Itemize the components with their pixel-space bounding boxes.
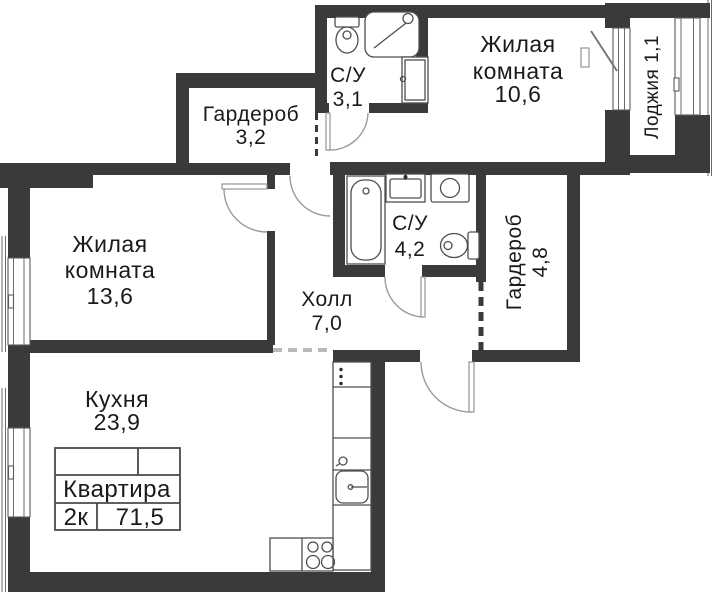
door-living-left (222, 184, 267, 232)
label-wardrobe-right-area: 4,8 (529, 247, 552, 278)
label-bathroom-mid-area: 4,2 (395, 238, 426, 261)
label-wardrobe-top-name: Гардероб (203, 103, 299, 126)
label-living-left-area: 13,6 (87, 283, 134, 309)
label-hall-name: Холл (301, 288, 353, 311)
stamp-total-area: 71,5 (116, 504, 165, 531)
balcony-door-handle (581, 48, 589, 67)
stove-icon (270, 538, 335, 571)
toilet-icon (441, 232, 480, 259)
door-bathroom-top (326, 113, 368, 150)
floor-plan: Жилая комната 10,6 С/У 3,1 Гардероб 3,2 … (0, 0, 713, 600)
toilet-icon (335, 17, 359, 53)
sink-icon (401, 57, 429, 103)
shower-icon (365, 12, 419, 57)
washing-machine-icon (431, 174, 469, 202)
sink-icon (386, 174, 425, 202)
window-kitchen (8, 428, 30, 517)
entry-door (421, 362, 474, 412)
label-hall-area: 7,0 (312, 312, 343, 335)
loggia-door-window (581, 28, 630, 110)
loggia-glazing (674, 18, 700, 115)
floor-plan-drawing: Жилая комната 10,6 С/У 3,1 Гардероб 3,2 … (0, 0, 713, 600)
area-stamp: Квартира 2к 71,5 (55, 448, 180, 531)
stamp-title: Квартира (63, 476, 171, 503)
label-wardrobe-right-name: Гардероб (503, 214, 526, 310)
label-living-left-name1: Жилая (72, 231, 147, 257)
label-living-top-name1: Жилая (480, 31, 555, 57)
door-hall-landing (290, 176, 330, 216)
label-loggia: Лоджия 1,1 (642, 35, 663, 139)
label-kitchen-area: 23,9 (94, 409, 141, 435)
bathtub-icon (347, 176, 385, 264)
label-bathroom-top-area: 3,1 (333, 88, 364, 111)
label-wardrobe-top-area: 3,2 (236, 126, 267, 149)
label-living-top-area: 10,6 (495, 81, 542, 107)
kitchen-counter (333, 362, 371, 570)
label-bathroom-mid-name: С/У (392, 212, 428, 235)
door-bathroom-mid (385, 277, 425, 317)
window-living-left (8, 258, 30, 345)
label-bathroom-top-name: С/У (330, 64, 366, 87)
stamp-rooms-count: 2к (64, 504, 89, 531)
label-living-left-name2: комната (65, 257, 155, 283)
